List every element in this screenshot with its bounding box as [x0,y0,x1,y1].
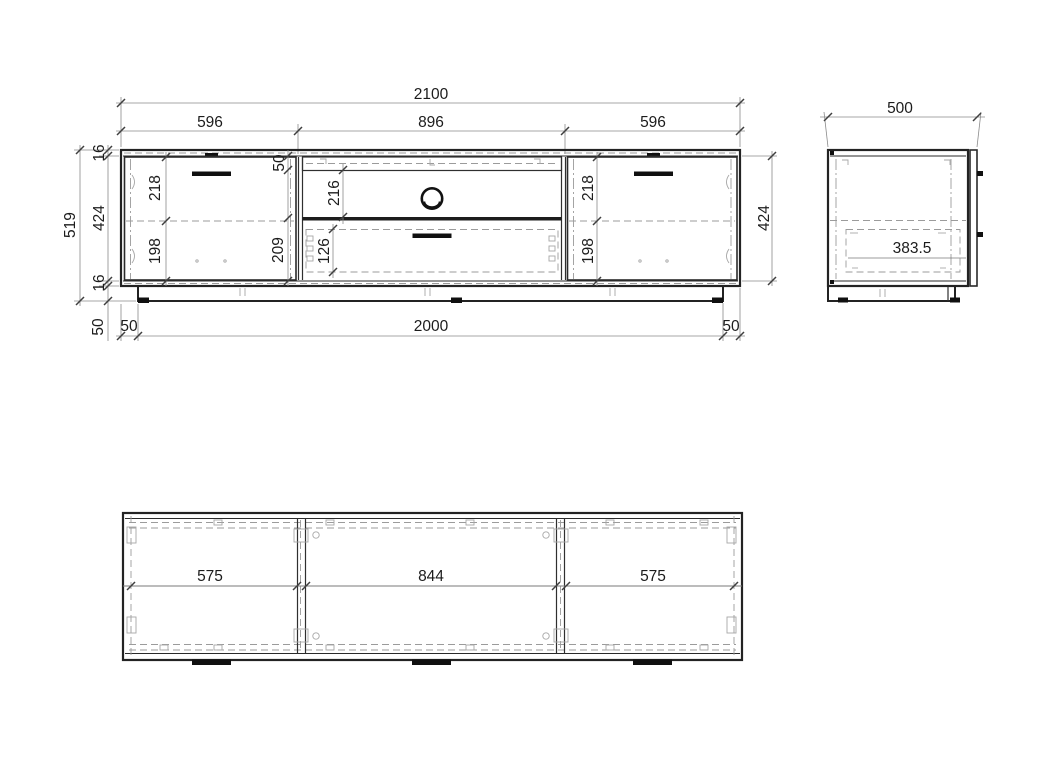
side-foot-front [950,298,960,303]
plan-handle-left [192,660,231,666]
technical-drawing-canvas: 2100 596 896 596 519 16 424 16 50 [0,0,1042,782]
plan-handle-right [633,660,672,666]
side-hinge-upper [977,171,983,176]
dim-left-door-width: 596 [197,114,223,131]
left-door-top-hinge-plate [205,153,218,156]
dim-center-width: 896 [418,114,444,131]
plinth-foot-center [451,298,462,304]
dim-total-height: 519 [62,212,79,238]
side-body-outline [828,150,968,286]
dim-left-door-lower: 198 [147,238,164,264]
dim-bottom-panel: 16 [91,274,108,291]
plinth-hidden-hardware [240,288,615,296]
right-door-top-hinge-plate [647,153,660,156]
plinth-foot-left [138,298,149,304]
front-view: 2100 596 896 596 519 16 424 16 50 [62,86,777,341]
plan-hidden-lines [129,516,736,657]
plinth [138,287,723,301]
dim-plinth-inset-right: 50 [722,318,740,335]
dim-interior-height-left: 424 [91,205,108,231]
dim-bay-left: 575 [197,568,223,585]
drawer-slide-hardware-right [549,236,555,261]
plinth-foot-right [712,298,723,304]
side-foot-back [838,298,848,303]
plan-band-hardware [160,520,708,650]
drawer-handle [413,234,452,239]
dim-bay-right: 575 [640,568,666,585]
dim-shelf-opening: 216 [326,180,343,206]
dim-right-door-width: 596 [640,114,666,131]
side-corner-dot-bottom [830,280,834,284]
side-view: 500 383.5 [820,100,985,303]
dim-interior-depth: 383.5 [893,240,932,257]
dim-depth-total: 500 [887,100,913,117]
dim-plinth-width: 2000 [414,318,449,335]
dim-right-door-upper: 218 [580,175,597,201]
dim-bay-center: 844 [418,568,444,585]
rail-hardware-mark2 [430,159,435,165]
plan-outline [123,513,742,660]
side-door-front-strip [970,150,977,286]
top-view: 575 844 575 [123,513,742,665]
dim-total-width: 2100 [414,86,449,103]
cable-grommet-cap [425,202,440,208]
cable-grommet [422,188,442,208]
dim-center-top-rail: 50 [271,154,288,172]
left-door-handle [192,172,231,177]
dim-plinth-height: 50 [90,318,107,336]
dim-center-lower-section: 209 [270,237,287,263]
side-plinth-hardware [880,289,885,297]
side-corner-dot-top [830,151,834,155]
plan-handle-center [412,660,451,666]
side-dim-lines [820,112,985,147]
dim-right-door-lower: 198 [580,238,597,264]
side-hinge-lower [977,232,983,237]
dim-left-door-upper: 218 [147,175,164,201]
dim-drawer-front: 126 [316,238,333,264]
dim-interior-height-right: 424 [756,205,773,231]
dim-plinth-inset-left: 50 [120,318,138,335]
furniture-drawing: 2100 596 896 596 519 16 424 16 50 [0,0,1042,782]
right-door-handle [634,172,673,177]
dim-top-panel: 16 [91,144,108,161]
drawer-slide-hardware-left [307,236,313,261]
